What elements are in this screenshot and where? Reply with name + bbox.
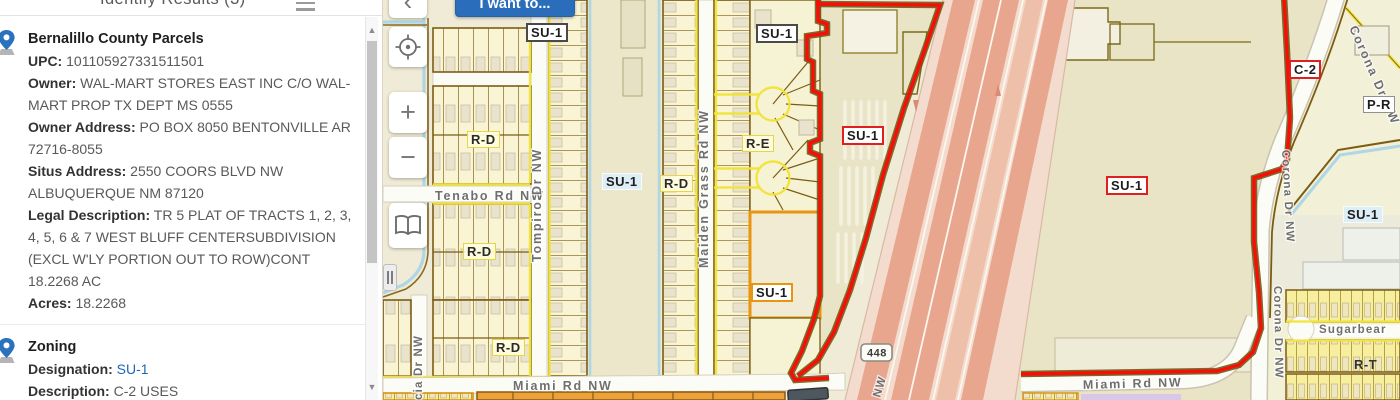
field-acres: Acres: 18.2268: [28, 292, 360, 314]
plus-icon: +: [400, 97, 416, 128]
identify-results-panel: Identify Results (3) Bernalillo County P…: [0, 0, 383, 400]
zone-label-su1-selected: SU-1: [1106, 176, 1148, 195]
zone-label-su1: SU-1: [1343, 206, 1383, 223]
zoning-designation-link[interactable]: SU-1: [117, 361, 149, 377]
map-pin-icon: [0, 337, 17, 364]
scroll-down-icon[interactable]: ▼: [366, 382, 378, 392]
zone-label-pr: P-R: [1363, 96, 1395, 113]
crosshair-icon: [394, 33, 422, 61]
panel-scrollbar[interactable]: ▲ ▼: [365, 17, 378, 400]
zone-label-rd: R-D: [492, 339, 525, 356]
street-label-sugarbear: Sugarbear: [1319, 324, 1387, 336]
street-label-miami-west: Miami Rd NW: [513, 379, 613, 393]
street-label-tompiro: Tompiro Dr NW: [530, 148, 544, 262]
zone-label-su1: SU-1: [602, 173, 642, 190]
zone-label-su1-selected: SU-1: [842, 126, 884, 145]
zoom-in-button[interactable]: +: [389, 92, 427, 133]
result-title: Bernalillo County Parcels: [28, 28, 360, 50]
locate-button[interactable]: [389, 27, 427, 67]
field-upc: UPC: 101105927331511501: [28, 50, 360, 72]
field-label: Designation:: [28, 361, 113, 377]
i-want-to-button[interactable]: I want to...: [455, 0, 575, 17]
panel-title: Identify Results (3): [100, 0, 246, 9]
panel-header: Identify Results (3): [0, 0, 382, 16]
scroll-up-icon[interactable]: ▲: [366, 25, 378, 35]
field-value: WAL-MART STORES EAST INC C/O WAL-MART PR…: [28, 75, 350, 113]
field-owner: Owner: WAL-MART STORES EAST INC C/O WAL-…: [28, 72, 360, 116]
zone-label-su1: SU-1: [751, 283, 793, 302]
street-label-cia-dr: cia Dr NW: [413, 335, 425, 400]
map-container: Tenabo Rd NW Tompiro Dr NW Maiden Grass …: [383, 0, 1400, 400]
zone-label-re: R-E: [742, 135, 774, 152]
field-value: 18.2268: [75, 295, 126, 311]
collapse-panel-button[interactable]: ‹: [389, 0, 427, 18]
street-label-tenabo: Tenabo Rd NW: [435, 189, 545, 203]
field-label: Acres:: [28, 295, 72, 311]
menu-icon[interactable]: [296, 0, 315, 11]
field-legal-description: Legal Description: TR 5 PLAT OF TRACTS 1…: [28, 204, 360, 292]
zone-label-su1: SU-1: [756, 24, 798, 43]
result-item-zoning[interactable]: Zoning Designation: SU-1 Description: C-…: [0, 325, 366, 400]
zoom-out-button[interactable]: −: [389, 137, 427, 178]
minus-icon: −: [400, 142, 416, 173]
field-label: Legal Description:: [28, 207, 150, 223]
zone-label-rd: R-D: [660, 175, 693, 192]
field-value: C-2 USES: [114, 383, 179, 399]
result-title: Zoning: [28, 336, 360, 358]
field-label: Owner Address:: [28, 119, 136, 135]
open-book-icon: [393, 214, 423, 238]
field-label: Situs Address:: [28, 163, 126, 179]
field-label: Description:: [28, 383, 110, 399]
street-label-maiden-grass: Maiden Grass Rd NW: [697, 109, 711, 268]
field-owner-address: Owner Address: PO BOX 8050 BENTONVILLE A…: [28, 116, 360, 160]
app-window: Identify Results (3) Bernalillo County P…: [0, 0, 1400, 400]
panel-resize-handle[interactable]: [383, 264, 397, 291]
chevron-left-icon: ‹: [404, 0, 413, 17]
scrollbar-thumb[interactable]: [367, 41, 377, 263]
street-label-corona-3: Corona Dr NW: [1271, 286, 1285, 379]
bookmarks-button[interactable]: [389, 203, 427, 248]
zone-label-rt: R-T: [1351, 357, 1380, 372]
field-label: UPC:: [28, 53, 62, 69]
map-pin-icon: [0, 29, 17, 56]
field-value: 101105927331511501: [66, 53, 204, 69]
zone-label-su1: SU-1: [526, 23, 568, 42]
zone-label-c2: C-2: [1289, 60, 1321, 79]
field-label: Owner:: [28, 75, 76, 91]
zone-label-rd: R-D: [467, 131, 500, 148]
route-shield-448: 448: [861, 344, 892, 361]
panel-body: Bernalillo County Parcels UPC: 101105927…: [0, 17, 366, 400]
field-description: Description: C-2 USES: [28, 380, 360, 400]
field-designation: Designation: SU-1: [28, 358, 360, 380]
map-canvas[interactable]: Tenabo Rd NW Tompiro Dr NW Maiden Grass …: [383, 0, 1400, 400]
zone-label-rd: R-D: [463, 243, 496, 260]
result-item-parcels[interactable]: Bernalillo County Parcels UPC: 101105927…: [0, 17, 366, 325]
field-situs-address: Situs Address: 2550 COORS BLVD NW ALBUQU…: [28, 160, 360, 204]
svg-text:448: 448: [867, 348, 887, 360]
street-label-miami-east: Miami Rd NW: [1083, 375, 1183, 392]
